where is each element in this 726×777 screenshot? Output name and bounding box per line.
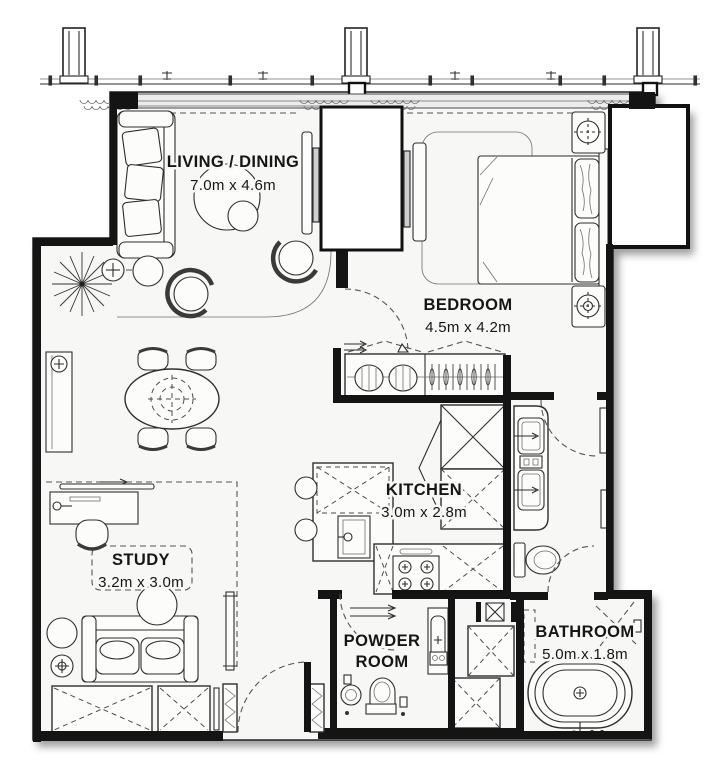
room-label-study: STUDY bbox=[112, 551, 170, 569]
stool bbox=[295, 477, 317, 499]
tv-icon bbox=[404, 151, 410, 227]
media-console bbox=[413, 143, 426, 241]
floor-plan-page: LIVING / DINING 7.0m x 4.6m BEDROOM 4.5m… bbox=[0, 0, 726, 777]
side-table bbox=[47, 618, 77, 648]
desk-chair bbox=[76, 520, 108, 549]
loveseat-sofa bbox=[82, 616, 198, 682]
room-dims-living-dining: 7.0m x 4.6m bbox=[190, 177, 276, 194]
powder-vanity bbox=[428, 608, 448, 674]
nightstand bbox=[572, 286, 605, 327]
side-table bbox=[137, 585, 177, 625]
room-label-kitchen: KITCHEN bbox=[386, 481, 462, 499]
basin-icon bbox=[341, 685, 361, 705]
floor-plan-drawing: LIVING / DINING 7.0m x 4.6m BEDROOM 4.5m… bbox=[0, 0, 726, 777]
stool bbox=[295, 519, 317, 541]
side-table bbox=[228, 201, 258, 231]
pillow bbox=[575, 223, 599, 282]
media-console bbox=[302, 132, 312, 234]
pillow bbox=[575, 159, 599, 218]
tv-icon bbox=[313, 148, 319, 222]
room-label-bathroom: BATHROOM bbox=[535, 623, 634, 641]
floor-lamp-icon bbox=[51, 655, 73, 677]
room-dims-bathroom: 5.0m x 1.8m bbox=[542, 646, 628, 663]
stove-icon bbox=[393, 549, 439, 592]
room-label-bedroom: BEDROOM bbox=[424, 296, 513, 314]
double-vanity bbox=[514, 406, 548, 530]
storage-closet bbox=[52, 686, 152, 732]
room-dims-bedroom: 4.5m x 4.2m bbox=[425, 319, 511, 336]
building-void bbox=[610, 106, 688, 247]
room-dims-study: 3.2m x 3.0m bbox=[98, 574, 184, 591]
balcony-railing bbox=[40, 28, 700, 97]
console-table bbox=[46, 352, 72, 452]
room-label-powder-1: POWDER bbox=[344, 632, 421, 650]
facade-column-icon bbox=[60, 28, 662, 97]
partition-wall bbox=[321, 107, 402, 250]
room-label-powder-2: ROOM bbox=[356, 653, 409, 671]
entry-door-leaf bbox=[304, 662, 311, 732]
room-label-living-dining: LIVING / DINING bbox=[167, 153, 300, 171]
wall-accessory bbox=[634, 620, 641, 632]
room-dims-kitchen: 3.0m x 2.8m bbox=[381, 504, 467, 521]
side-table bbox=[133, 256, 163, 286]
nightstand bbox=[572, 112, 605, 153]
pocket-door bbox=[226, 592, 234, 670]
